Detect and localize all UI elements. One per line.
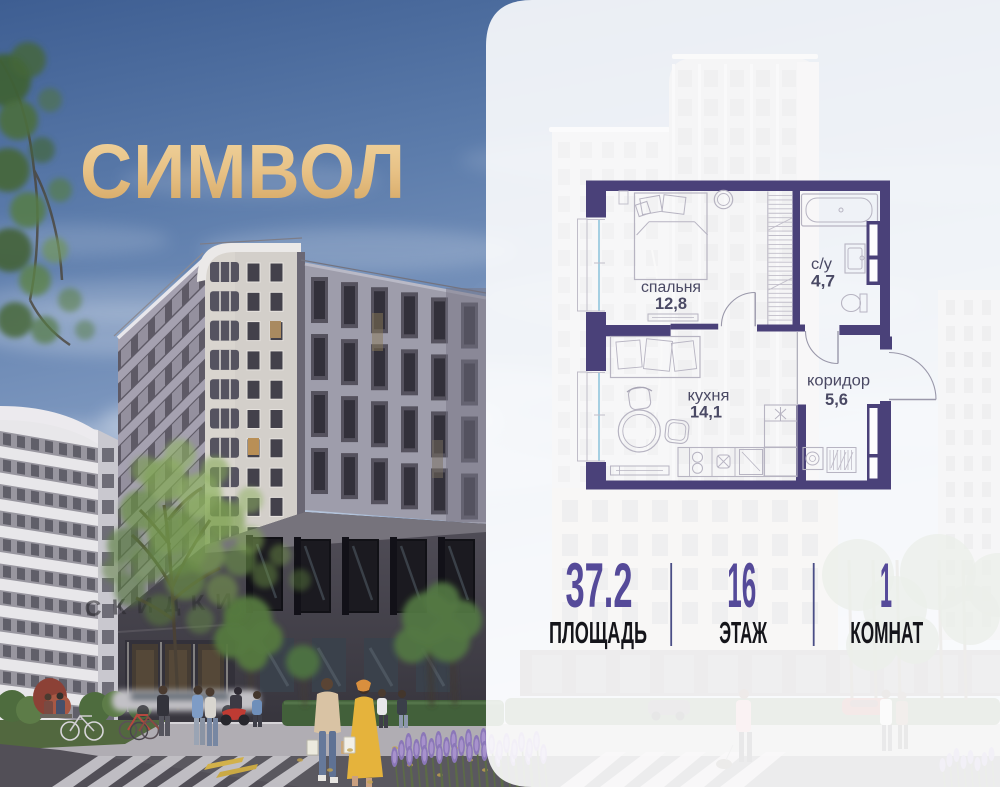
svg-text:14,1: 14,1 <box>690 403 722 422</box>
svg-text:4,7: 4,7 <box>811 272 835 291</box>
svg-text:с/у: с/у <box>811 256 832 273</box>
svg-text:12,8: 12,8 <box>655 294 687 313</box>
svg-text:коридор: коридор <box>807 373 870 390</box>
svg-text:37.2: 37.2 <box>566 551 633 621</box>
svg-text:КОМНАТ: КОМНАТ <box>850 615 923 650</box>
svg-text:ПЛОЩАДЬ: ПЛОЩАДЬ <box>549 615 647 650</box>
svg-text:1: 1 <box>880 551 892 621</box>
svg-text:16: 16 <box>727 551 756 621</box>
svg-text:5,6: 5,6 <box>825 390 848 409</box>
svg-text:ЭТАЖ: ЭТАЖ <box>719 615 768 650</box>
svg-text:СИМВОЛ: СИМВОЛ <box>80 129 406 215</box>
